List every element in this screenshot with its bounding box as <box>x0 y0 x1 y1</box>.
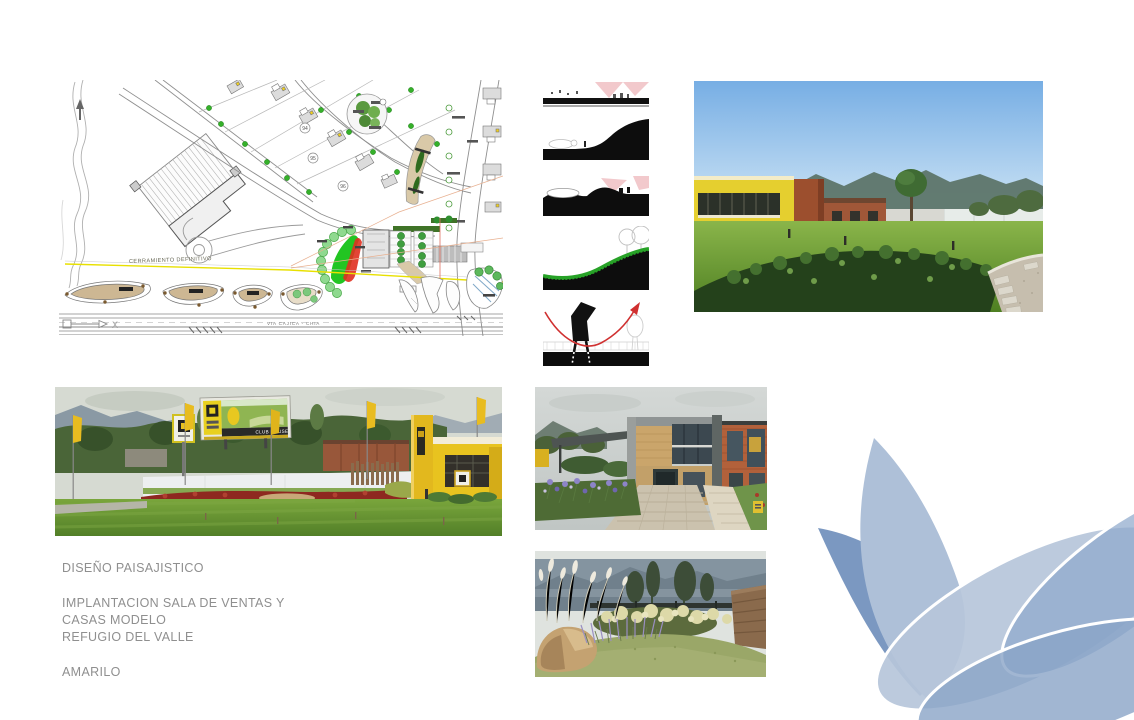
scope-line: REFUGIO DEL VALLE <box>62 630 194 644</box>
presentation-slide: 94 95 96 <box>0 0 1134 720</box>
purple-flower-bed <box>535 478 641 521</box>
lot-number: 95 <box>310 156 316 162</box>
logo-leaf-shapes <box>818 438 1134 720</box>
section-diagram-green-slope <box>543 226 649 290</box>
photo-grass-mound <box>535 551 766 677</box>
site-plan-drawing: 94 95 96 <box>59 80 503 336</box>
client-label: AMARILO <box>62 665 121 679</box>
section-diagram-rising-hill <box>543 116 649 160</box>
scope-line: CASAS MODELO <box>62 613 166 627</box>
lot-number: 96 <box>340 184 346 190</box>
design-type-label: DISEÑO PAISAJISTICO <box>62 561 204 575</box>
plan-circular-plaza <box>347 94 387 134</box>
photo-sales-garden: CLUB HOUSE <box>55 387 502 536</box>
photo-model-houses <box>535 387 767 530</box>
section-diagram-mound <box>543 176 649 216</box>
section-diagram-flat-site <box>543 82 649 108</box>
plan-label-road: VIA CAJICA - CHIA <box>267 321 320 326</box>
scope-line: IMPLANTACION SALA DE VENTAS Y <box>62 596 285 610</box>
studio-logo-leaves <box>816 422 1134 720</box>
wood-wall <box>731 585 766 649</box>
section-diagram-lookout <box>543 296 649 366</box>
lot-number: 94 <box>302 126 308 132</box>
plan-axis-label: X <box>112 320 118 330</box>
photo-clubhouse-garden <box>694 81 1043 312</box>
